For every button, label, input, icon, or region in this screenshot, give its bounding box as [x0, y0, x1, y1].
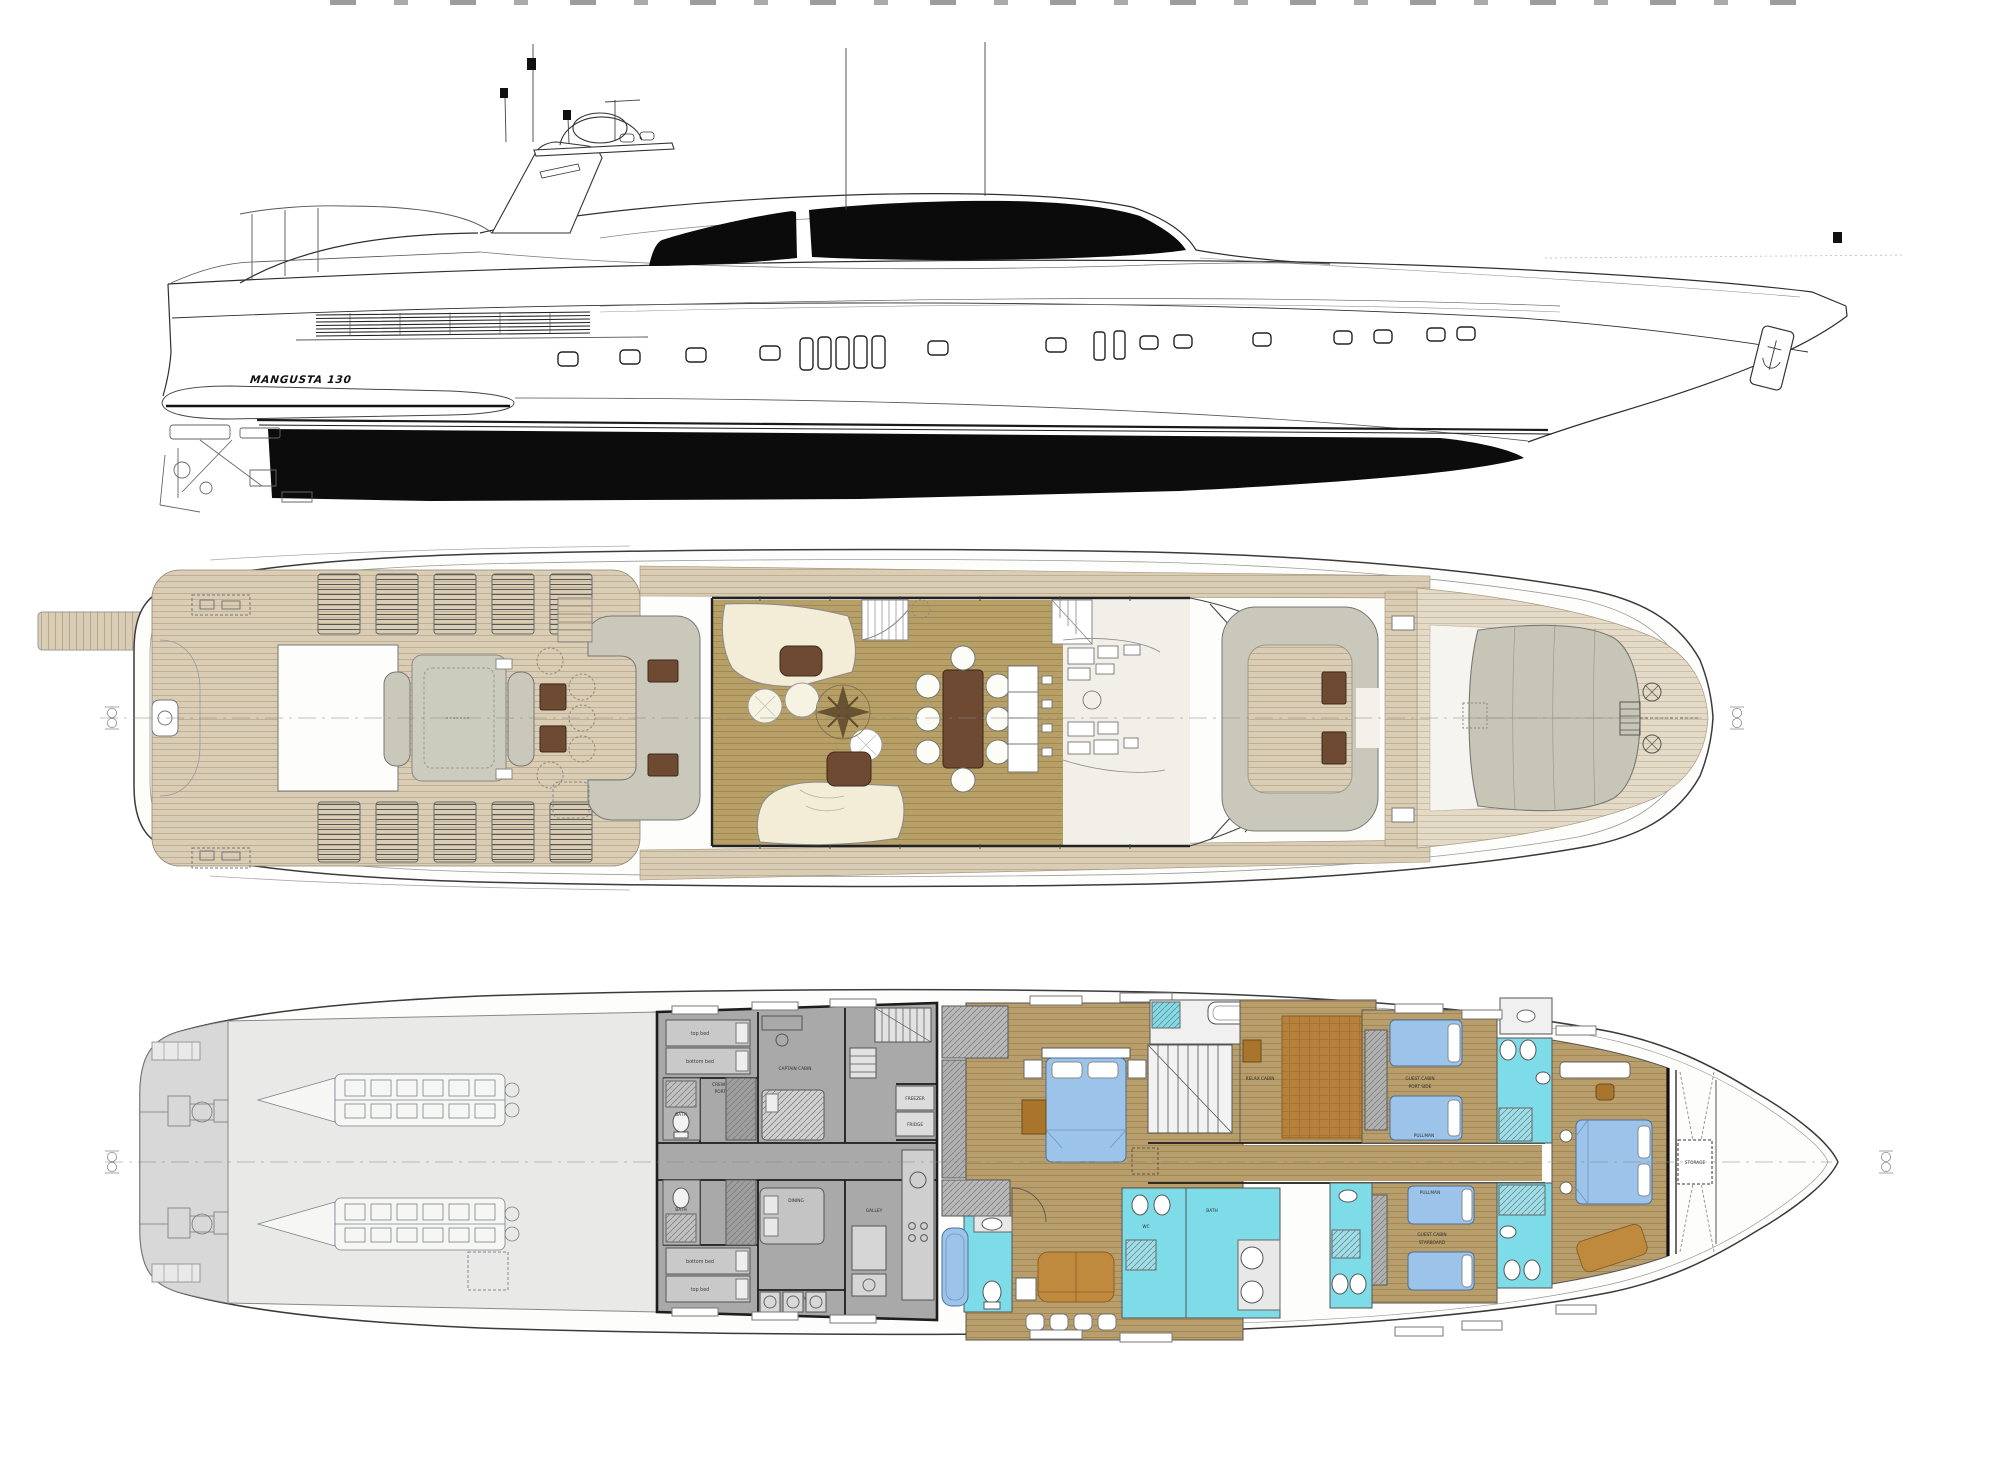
bow-cockpit: [1222, 607, 1380, 831]
laundry-room: LAUNDRY: [760, 1292, 826, 1312]
profile-view: MANGUSTA 130: [0, 0, 2000, 530]
tall-window-group: [800, 331, 1125, 370]
label-pullman-port: PULLMAN: [1414, 1133, 1434, 1139]
label-pullman-stbd: PULLMAN: [1420, 1190, 1440, 1196]
label-guest-cabin-stbd: GUEST CABIN: [1417, 1232, 1446, 1238]
label-top-bed-2: top bed: [691, 1287, 709, 1293]
label-galley: GALLEY: [866, 1208, 883, 1214]
superstructure: [171, 194, 1330, 283]
engine-vent-louvers: [296, 312, 648, 340]
aft-railing: [240, 206, 492, 280]
amidships-stairs: [1148, 1045, 1232, 1133]
label-dining: DINING: [788, 1198, 804, 1204]
label-captain-cabin: CAPTAIN CABIN: [779, 1066, 812, 1072]
bow-sunpad: [1463, 624, 1640, 811]
drawing-sheet: MANGUSTA 130: [0, 0, 2000, 1474]
anchor-hatch: [1749, 325, 1795, 391]
relax-cabin: RELAX CABIN: [1240, 1000, 1376, 1143]
label-bottom-bed: bottom bed: [686, 1059, 714, 1065]
crew-bath-2: BATH: [663, 1180, 700, 1245]
salon-table-aft: [780, 646, 822, 676]
label-storage: STORAGE: [1685, 1160, 1706, 1166]
compass-rose-inlay: [816, 685, 870, 739]
label-guest-cabin-port: GUEST CABIN: [1405, 1076, 1434, 1082]
hull-portholes: [558, 327, 1475, 370]
guest-bath-starboard: [1330, 1183, 1372, 1308]
label-relax-cabin: RELAX CABIN: [1246, 1076, 1275, 1082]
antifouling-black-bottom: [268, 429, 1524, 501]
main-deck-plan: [0, 530, 2000, 950]
tinted-glass-forward-pane: [809, 201, 1186, 260]
guest-bath-port: [1497, 998, 1552, 1143]
salon-cream-sofa-fwd: [757, 782, 904, 845]
center-bathroom: WC BATH: [1122, 1188, 1280, 1318]
guest-cabin-port: GUEST CABIN PORT SIDE PULLMAN: [1362, 1010, 1497, 1143]
label-port-side: PORT SIDE: [1409, 1084, 1432, 1090]
tinted-glass-aft-pane: [649, 211, 797, 266]
swim-platform-profile: [162, 386, 514, 419]
label-bath-center: BATH: [1206, 1208, 1217, 1214]
crew-mess: DINING: [760, 1188, 824, 1244]
lower-deck-plan: top bed bottom bed CREW CABIN PORT SIDE …: [0, 950, 2000, 1380]
centerline-symbol-bow-lower: [1879, 1151, 1893, 1173]
guest-cabin-starboard: GUEST CABIN STARBOARD PULLMAN: [1362, 1183, 1497, 1303]
bow-reference-mark: [1833, 232, 1842, 243]
label-starboard: STARBOARD: [1419, 1240, 1446, 1246]
label-bottom-bed-2: bottom bed: [686, 1259, 714, 1265]
label-top-bed: top bed: [691, 1031, 709, 1037]
centerline-symbol-bow: [1730, 707, 1744, 729]
salon-stairs-fwd: [1052, 600, 1092, 644]
vip-bath: [1497, 1183, 1552, 1288]
label-bath-1: BATH: [675, 1112, 686, 1118]
label-fridge: FRIDGE: [907, 1122, 923, 1128]
label-wc: WC: [1142, 1224, 1149, 1230]
hull-name-plate: MANGUSTA 130: [249, 374, 352, 386]
crew-bath-1: BATH: [663, 1078, 700, 1140]
label-bath-2: BATH: [675, 1207, 686, 1213]
label-freezer: FREEZER: [905, 1096, 925, 1102]
salon-coffee-table: [827, 752, 871, 786]
